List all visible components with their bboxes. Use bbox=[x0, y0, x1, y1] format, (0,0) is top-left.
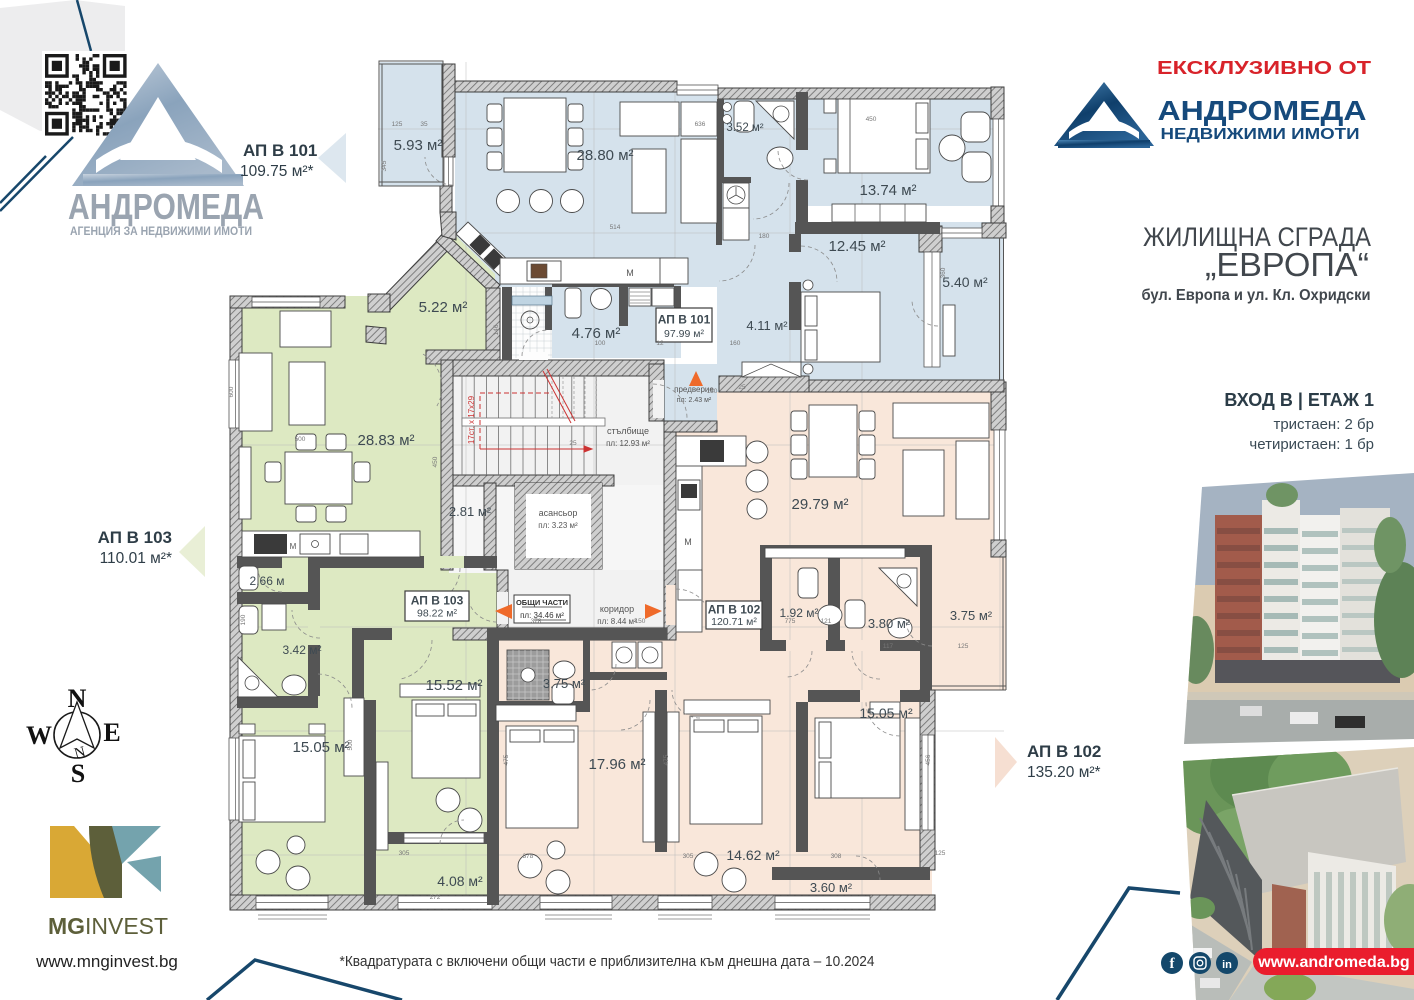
svg-text:W: W bbox=[26, 721, 52, 750]
svg-text:146: 146 bbox=[493, 324, 500, 335]
svg-text:АНДРОМЕДА: АНДРОМЕДА bbox=[1158, 95, 1367, 126]
svg-text:АП В 101: АП В 101 bbox=[658, 312, 711, 326]
svg-text:514: 514 bbox=[610, 224, 621, 231]
svg-text:3.75 м²: 3.75 м² bbox=[950, 608, 993, 623]
svg-text:109.75 м²*: 109.75 м²* bbox=[240, 163, 314, 180]
svg-text:INVEST: INVEST bbox=[85, 913, 168, 939]
svg-text:3.80 м²: 3.80 м² bbox=[868, 616, 911, 631]
svg-text:150: 150 bbox=[635, 618, 646, 625]
svg-text:пл: 12.93 м²: пл: 12.93 м² bbox=[606, 439, 650, 448]
svg-text:in: in bbox=[1222, 959, 1232, 971]
svg-text:АП В 101: АП В 101 bbox=[243, 141, 317, 160]
svg-text:125: 125 bbox=[958, 643, 969, 650]
svg-text:475: 475 bbox=[503, 754, 510, 765]
svg-text:АП В 102: АП В 102 bbox=[708, 603, 761, 617]
svg-text:305: 305 bbox=[399, 850, 410, 857]
svg-text:5.93 м²: 5.93 м² bbox=[394, 137, 443, 154]
svg-text:ОБЩИ ЧАСТИ: ОБЩИ ЧАСТИ bbox=[516, 598, 568, 607]
svg-text:98.22 м²: 98.22 м² bbox=[417, 608, 457, 620]
svg-text:15.05 м²: 15.05 м² bbox=[292, 739, 349, 756]
svg-text:3.60 м²: 3.60 м² bbox=[810, 880, 853, 895]
svg-text:28.80 м²: 28.80 м² bbox=[576, 147, 633, 164]
svg-text:110.01 м²*: 110.01 м²* bbox=[100, 550, 172, 567]
svg-text:475: 475 bbox=[663, 754, 670, 765]
svg-text:360: 360 bbox=[940, 267, 947, 278]
svg-text:М: М bbox=[684, 537, 692, 547]
svg-text:N: N bbox=[68, 684, 87, 713]
svg-text:17.96 м²: 17.96 м² bbox=[588, 756, 645, 773]
svg-text:15.05 м²: 15.05 м² bbox=[859, 705, 913, 721]
svg-text:4.08 м²: 4.08 м² bbox=[437, 873, 483, 889]
svg-text:E: E bbox=[103, 718, 120, 747]
svg-text:25: 25 bbox=[569, 440, 577, 447]
svg-text:17ст. х 17х29: 17ст. х 17х29 bbox=[467, 395, 476, 444]
svg-text:АП В 102: АП В 102 bbox=[1027, 742, 1101, 761]
svg-text:www.andromeda.bg: www.andromeda.bg bbox=[1257, 954, 1409, 971]
svg-text:25: 25 bbox=[738, 384, 746, 391]
svg-text:4.11 м²: 4.11 м² bbox=[746, 318, 788, 333]
svg-text:636: 636 bbox=[695, 121, 706, 128]
svg-text:14.62 м²: 14.62 м² bbox=[726, 847, 780, 863]
svg-text:ЕКСКЛУЗИВНО ОТ: ЕКСКЛУЗИВНО ОТ bbox=[1157, 58, 1371, 78]
svg-text:272: 272 bbox=[430, 894, 441, 901]
svg-text:15.52 м²: 15.52 м² bbox=[425, 677, 482, 694]
svg-text:13.74 м²: 13.74 м² bbox=[859, 182, 916, 199]
svg-text:3.52 м²: 3.52 м² bbox=[726, 122, 763, 134]
svg-text:12.45 м²: 12.45 м² bbox=[828, 238, 885, 255]
svg-text:MG: MG bbox=[48, 913, 85, 939]
svg-text:АГЕНЦИЯ ЗА НЕДВИЖИМИ ИМОТИ: АГЕНЦИЯ ЗА НЕДВИЖИМИ ИМОТИ bbox=[70, 224, 252, 238]
svg-text:97.99 м²: 97.99 м² bbox=[664, 328, 704, 340]
svg-text:450: 450 bbox=[432, 456, 439, 467]
svg-text:378: 378 bbox=[523, 853, 534, 860]
svg-text:3.75 м²: 3.75 м² bbox=[543, 676, 586, 691]
svg-text:НЕДВИЖИМИ ИМОТИ: НЕДВИЖИМИ ИМОТИ bbox=[1161, 126, 1360, 143]
svg-text:М: М bbox=[290, 542, 297, 551]
svg-text:180: 180 bbox=[759, 233, 770, 240]
svg-text:ВХОД В | ЕТАЖ 1: ВХОД В | ЕТАЖ 1 bbox=[1224, 390, 1374, 410]
svg-text:АП В 103: АП В 103 bbox=[411, 594, 464, 608]
svg-text:160: 160 bbox=[730, 340, 741, 347]
svg-text:5.40 м²: 5.40 м² bbox=[942, 274, 988, 290]
svg-text:150: 150 bbox=[707, 388, 718, 395]
svg-text:125: 125 bbox=[392, 121, 403, 128]
svg-text:3.42 м²: 3.42 м² bbox=[283, 643, 322, 657]
svg-text:пл: 8.44 м²: пл: 8.44 м² bbox=[597, 617, 637, 626]
svg-text:28.83 м²: 28.83 м² bbox=[357, 432, 414, 449]
svg-text:2.66 м: 2.66 м bbox=[250, 574, 285, 588]
svg-text:305: 305 bbox=[683, 853, 694, 860]
svg-text:5.22 м²: 5.22 м² bbox=[419, 299, 468, 316]
svg-text:450: 450 bbox=[866, 116, 877, 123]
svg-text:www.mnginvest.bg: www.mnginvest.bg bbox=[35, 952, 178, 971]
svg-text:*Квадратурата с включени общи: *Квадратурата с включени общи части е пр… bbox=[340, 953, 875, 970]
svg-text:500: 500 bbox=[347, 739, 354, 750]
svg-text:100: 100 bbox=[595, 340, 606, 347]
svg-text:775: 775 bbox=[785, 618, 796, 625]
svg-text:500: 500 bbox=[295, 436, 306, 443]
svg-text:2.81 м²: 2.81 м² bbox=[449, 504, 492, 519]
svg-text:асансьор: асансьор bbox=[539, 508, 578, 518]
svg-text:пл: 3.23 м²: пл: 3.23 м² bbox=[538, 521, 578, 530]
svg-text:29.79 м²: 29.79 м² bbox=[791, 496, 848, 513]
svg-text:S: S bbox=[71, 759, 85, 788]
svg-text:120.71 м²: 120.71 м² bbox=[711, 616, 757, 628]
svg-text:600: 600 bbox=[228, 386, 235, 397]
svg-text:АНДРОМЕДА: АНДРОМЕДА bbox=[68, 186, 264, 227]
svg-text:35: 35 bbox=[420, 121, 428, 128]
svg-text:190: 190 bbox=[240, 614, 247, 625]
svg-text:тристаен: 2 бр: тристаен: 2 бр bbox=[1273, 416, 1374, 433]
svg-text:456: 456 bbox=[925, 754, 932, 765]
svg-text:пл: 2.43 м²: пл: 2.43 м² bbox=[677, 397, 712, 404]
svg-text:четиристаен: 1 бр: четиристаен: 1 бр bbox=[1249, 436, 1374, 453]
svg-text:бул. Европа и ул. Кл. Охридски: бул. Европа и ул. Кл. Охридски bbox=[1142, 287, 1371, 304]
svg-text:12: 12 bbox=[656, 340, 664, 347]
svg-text:125: 125 bbox=[935, 850, 946, 857]
svg-text:стълбище: стълбище bbox=[607, 426, 649, 436]
svg-text:„ЕВРОПА“: „ЕВРОПА“ bbox=[1205, 246, 1369, 283]
svg-text:378: 378 bbox=[531, 618, 542, 625]
svg-text:345: 345 bbox=[381, 160, 388, 171]
svg-text:308: 308 bbox=[831, 853, 842, 860]
svg-text:коридор: коридор bbox=[600, 604, 634, 614]
svg-text:135.20 м²*: 135.20 м²* bbox=[1027, 764, 1101, 781]
svg-text:117: 117 bbox=[883, 643, 894, 650]
svg-text:АП В 103: АП В 103 bbox=[98, 528, 172, 547]
svg-text:пл: 34.46 м²: пл: 34.46 м² bbox=[520, 611, 564, 620]
svg-text:М: М bbox=[626, 268, 634, 278]
svg-text:121: 121 bbox=[821, 618, 832, 625]
